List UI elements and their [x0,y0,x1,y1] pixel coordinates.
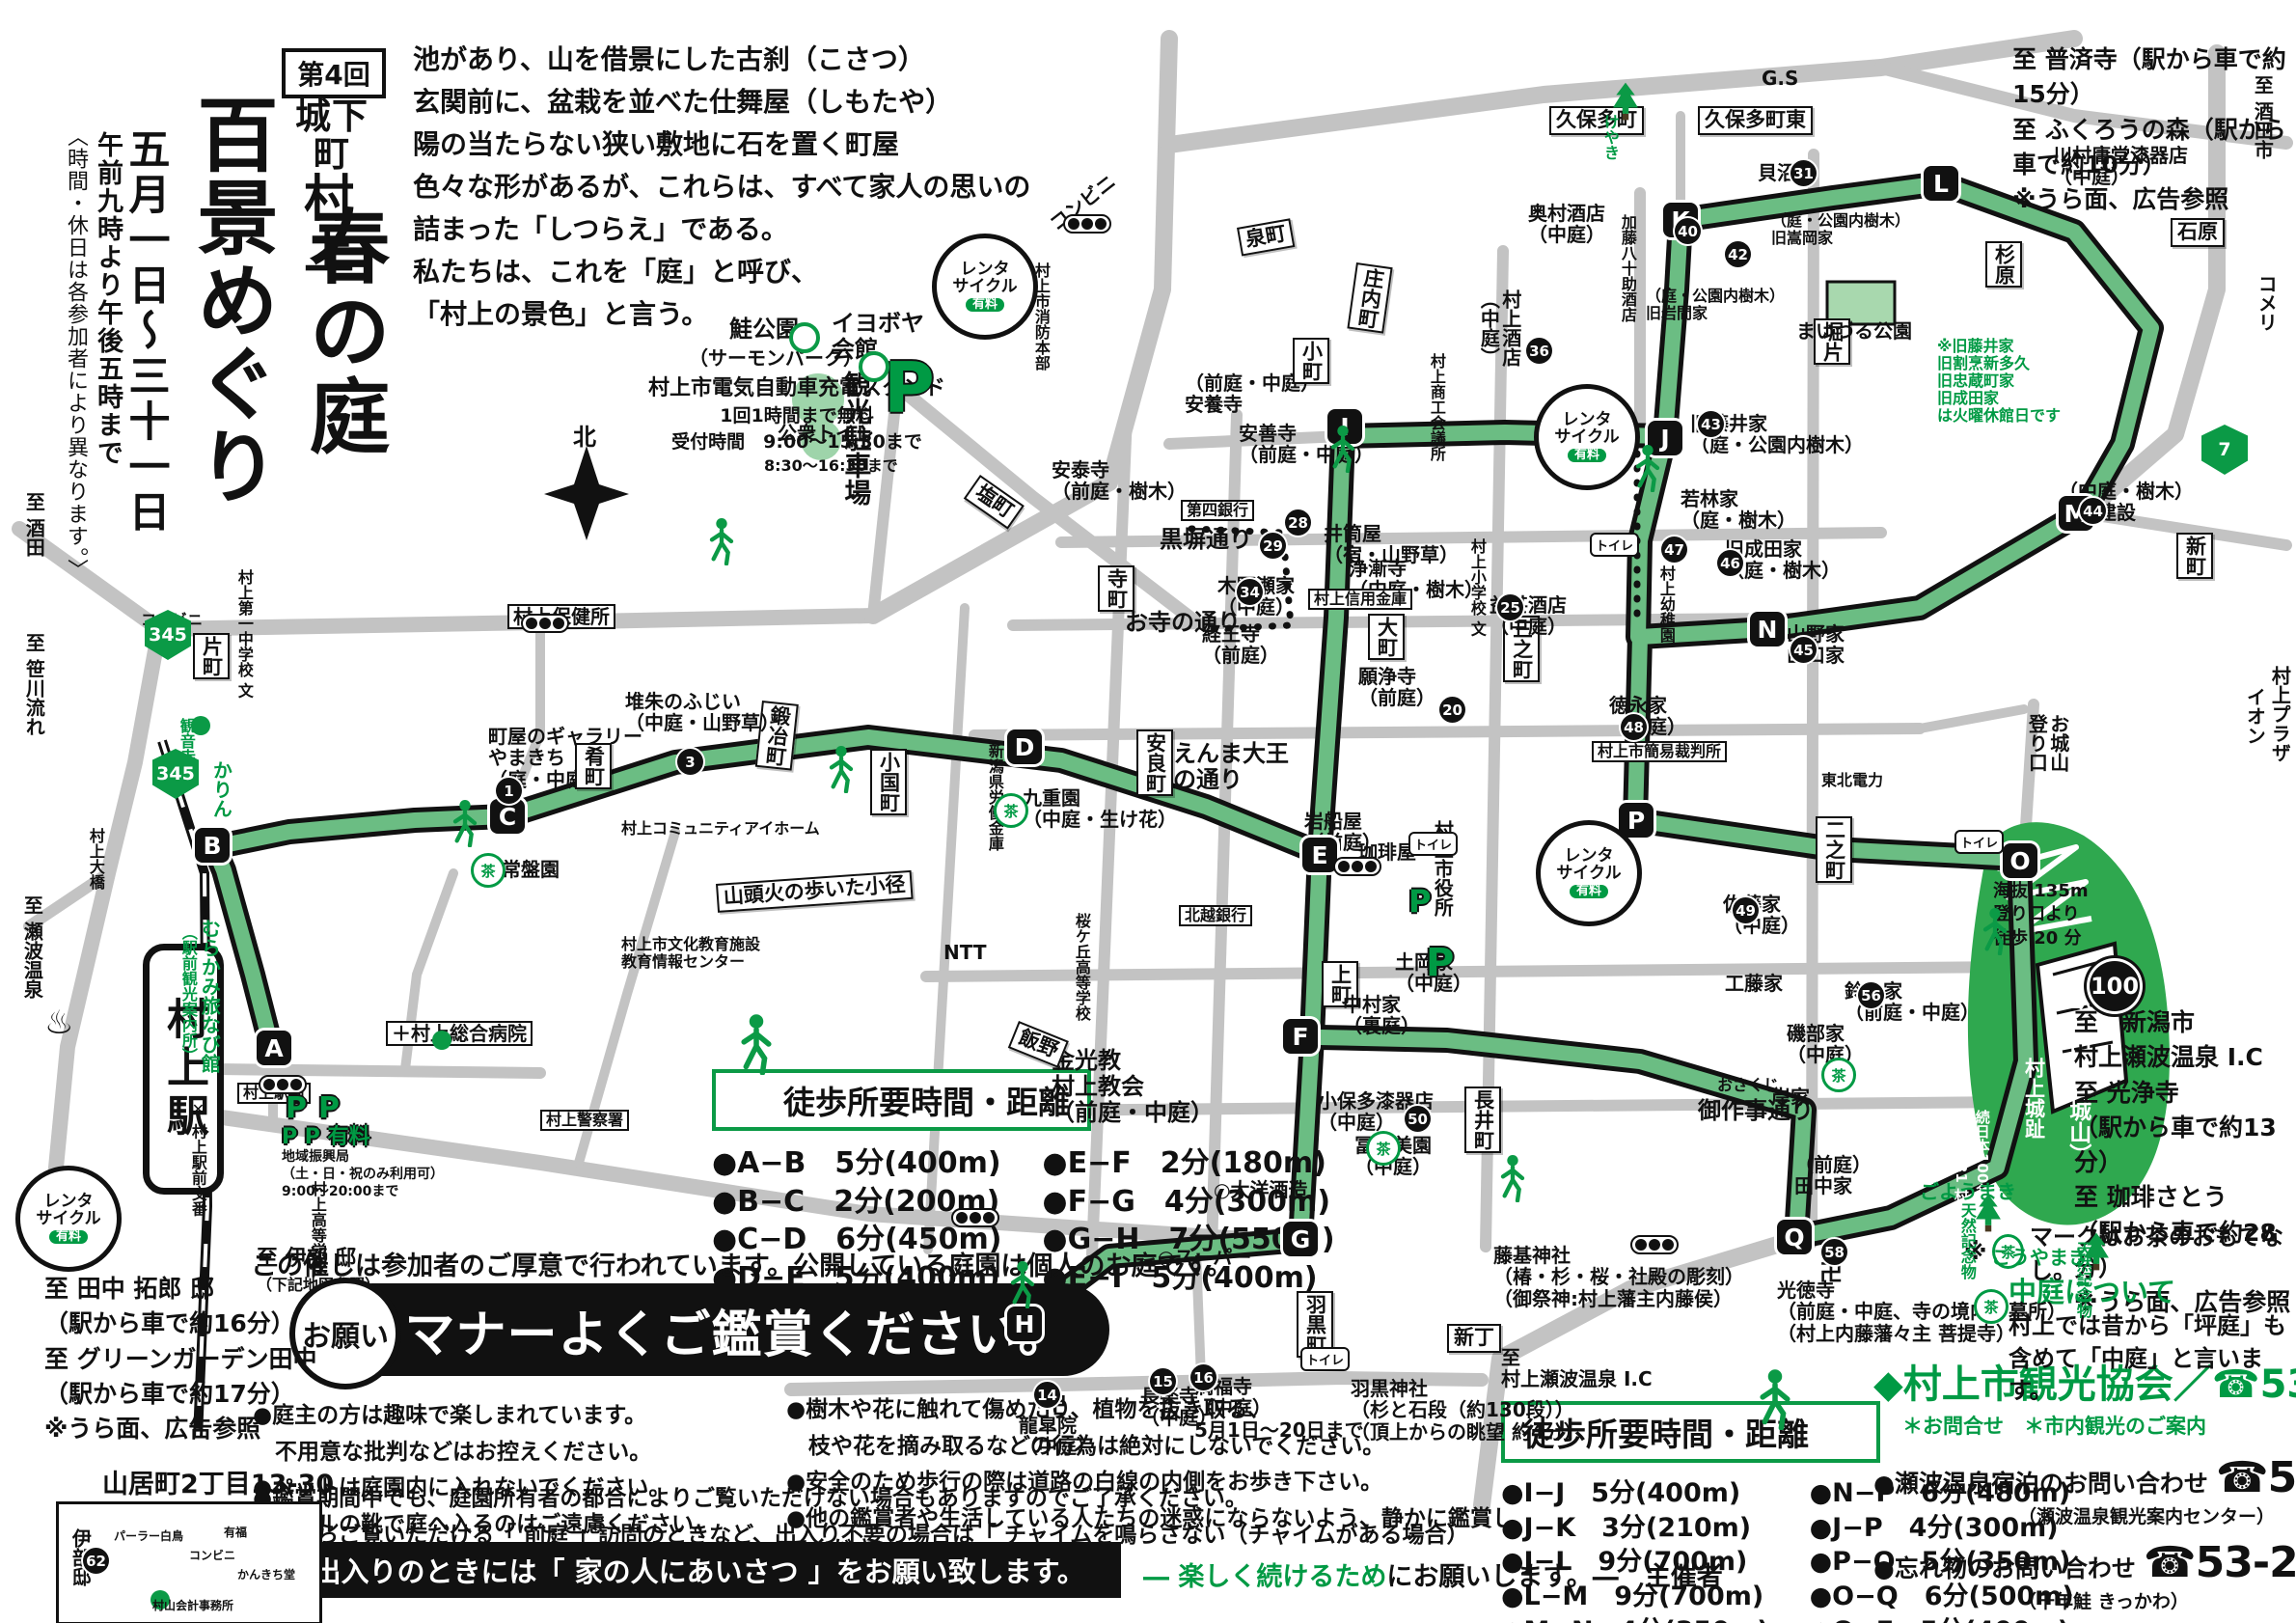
map-label: 長井町 [1464,1087,1501,1153]
manner-headline-bar: マナーよくご鑑賞ください。 [326,1283,1109,1376]
place-dot-icon [432,1031,451,1050]
traffic-signal-icon [1630,1235,1679,1254]
map-label: ＋村上総合病院 [386,1021,533,1046]
contact-note: （瀬波温泉観光案内センター） [2018,1502,2288,1528]
garden-spot-44: 44 [2080,498,2106,524]
map-label: 村上酒店（中庭） [1478,289,1521,367]
map-label: 北越銀行 [1179,905,1252,926]
map-label: 北 [573,425,596,451]
walker-icon [1003,1260,1042,1312]
public-toilet-hours: 8:30～16:30まで [764,457,898,475]
map-label: 至 瀬波温泉 [21,895,42,999]
koban-label: ✕ 村上駅前交番 [189,1100,206,1217]
map-label: （庭・公園内樹木）旧岩間家 [1646,288,1785,322]
compass-star [544,446,629,540]
route-marker-C: C [490,799,525,834]
map-label: 願浄寺（前庭） [1358,666,1435,709]
tea-service-icon: 茶 [994,793,1028,828]
walker-icon [702,517,741,569]
map-label: 村上第一中学校 文 [235,569,253,699]
inset-label: コンビニ [189,1550,235,1562]
walker-icon [1750,1368,1800,1430]
toilet-icon: トイレ [1408,832,1458,856]
map-label: 至村上瀬波温泉 I.C [1501,1347,1653,1390]
map-label: 満福寺（中庭）5月1日～20日まで [1194,1376,1364,1441]
garden-spot-14: 14 [1034,1382,1060,1408]
garden-spot-29: 29 [1260,533,1286,559]
shinko-office-block: P P 有料 地域振興局 （土・日・祝のみ利用可） 9:00～20:00まで [282,1127,444,1201]
map-label: 若林家（庭・樹木） [1681,488,1796,532]
garden-spot-1: 1 [496,778,522,804]
route-marker-A: A [257,1031,291,1065]
walker-icon [822,745,861,797]
map-label: 村上警察署 [540,1110,629,1131]
map-label: 工藤家 [1725,973,1783,994]
onsen-icon: ♨ [44,1004,73,1042]
manner-headline: マナーよくご鑑賞ください。 [366,1294,1069,1366]
garden-spot-25: 25 [1497,594,1523,620]
map-label: 村上商工会議所 [1428,353,1445,461]
walk-row: ●I−J 5分(400m) [1501,1476,1769,1511]
route-marker-O: O [2003,843,2037,878]
navi-house-sublabel: （駅前観光案内所） [179,924,197,1063]
map-label: 村上小学校 文 [1468,538,1486,637]
contact-phone: ☎53-2213 [2144,1538,2296,1587]
walker-icon [1976,907,2014,959]
garden-spot-56: 56 [1858,982,1884,1008]
garden-spot-58: 58 [1821,1239,1847,1265]
intro-line: 池があり、山を借景にした古刹（こさつ） [413,39,1050,81]
route-marker-F: F [1283,1019,1318,1054]
rental-cycle-badge: レンタサイクル有料 [15,1166,122,1272]
garden-spot-15: 15 [1150,1368,1176,1394]
shinko-days: （土・日・祝のみ利用可） [282,1166,444,1183]
garden-spot-62: 62 [83,1548,109,1574]
traffic-signal-icon [1063,214,1111,234]
map-label: お寺の通り [1125,610,1241,636]
map-label: 奥村酒店（中庭） [1528,203,1605,246]
tree-icon [1609,81,1642,125]
walk-row: ●A−B 5分(400m) [712,1144,1001,1183]
garden-spot-16: 16 [1190,1364,1216,1390]
notice-intro: この催しは参加者のご厚意で行われています。公開している庭園は個人のお庭です。 [251,1245,1233,1282]
intro-line: 陽の当たらない狭い敷地に石を置く町屋 [413,124,1050,166]
map-label: ○スーパー [1158,1247,1251,1268]
note-line: 至 グリーンガーデン田中 [44,1342,316,1377]
map-label: 寺町 [1098,565,1134,612]
castle-ruins-label: 村上城趾 [2022,1058,2045,1139]
tea-service-icon: 茶 [1366,1131,1401,1166]
map-label: おさくじ [1717,1077,1779,1094]
notice-bullet: ●鑑賞期間中でも、庭園所有者の都合によりご覧いただけない場合もありますのでご了承… [253,1484,1488,1515]
walk-table-2-left: ●I−J 5分(400m)●J−K 3分(210m)●J−L 9分(700m)●… [1501,1476,1769,1623]
contact-row: ●瀬波温泉宿泊のお問い合わせ☎52-2656（瀬波温泉観光案内センター） [1873,1453,2288,1528]
note-line: （駅から車で約16分） [44,1307,316,1341]
garden-spot-31: 31 [1790,160,1817,186]
map-label: 川村庸堂漆器店（中庭） [2053,145,2188,188]
note-line: 至 光浄寺 [2074,1076,2296,1111]
map-label: イオン [2244,687,2265,745]
garden-spot-43: 43 [1698,411,1724,437]
garden-spot-40: 40 [1675,218,1701,244]
walker-icon [1493,1154,1532,1206]
parking-icon: P [286,1094,307,1123]
map-label: 岸家 [1771,1087,1810,1108]
walker-icon [446,799,484,851]
map-label: （前庭）田中家 [1794,1154,1872,1197]
map-label: 第四銀行 [1181,500,1254,521]
contact-label: ●忘れ物のお問い合わせ [1873,1550,2136,1584]
route-marker-E: E [1302,838,1337,872]
map-label: 至 酒田市 [2252,75,2273,159]
place-ring-icon [859,351,889,382]
map-label: 新丁 [1447,1324,1501,1353]
garden-spot-50: 50 [1405,1106,1431,1132]
map-label: 常盤園 [502,859,560,880]
route-marker-D: D [1007,729,1042,764]
map-label: G.S [1762,68,1798,89]
inset-label: 有福 [224,1527,247,1539]
tourism-association-sub: ＊お問合せ ＊市内観光のご案内 [1902,1411,2288,1440]
map-label: まいづる公園 [1796,320,1912,342]
route-marker-P: P [1619,803,1654,838]
map-label: ※旧藤井家旧割烹新多久旧忠蔵町家旧成田家は火曜休館日です [1937,338,2061,425]
tea-service-icon: 茶 [1821,1058,1856,1092]
map-label: 大町 [1368,614,1405,660]
toilet-icon: トイレ [1954,830,2004,854]
map-label: 石原 [2171,218,2225,247]
tree-icon [1972,1193,2005,1237]
parking-icon: P [884,353,935,423]
tea-service-icon: 茶 [1974,1289,2009,1324]
rental-cycle-badge: レンタサイクル有料 [1536,820,1642,926]
map-label: 東北電力 [1821,772,1883,789]
garden-spot-48: 48 [1621,714,1647,740]
parking-icon: P [318,1094,340,1123]
toilet-icon: トイレ [1300,1347,1350,1371]
garden-spot-100: 100 [2090,961,2140,1011]
traffic-signal-icon [951,1208,999,1227]
nakaniwa-body2: 含めて「中庭」と言います。 [2009,1343,2296,1408]
route-marker-Q: Q [1777,1220,1812,1254]
map-label: 村上市文化教育施設教育情報センター [621,936,760,971]
map-label: 久保多町東 [1698,106,1813,135]
inset-title: 山居町2丁目13-30 [102,1463,334,1500]
map-label: NTT [943,942,986,963]
shinko-name: 地域振興局 [282,1148,444,1166]
route-marker-N: N [1750,612,1785,646]
map-label: 桜ケ丘高等学校 [1073,913,1090,1021]
intro-line: 玄関前に、盆栽を並べた仕舞屋（しもたや） [413,81,1050,124]
map-label: 至 笹川流れ [23,633,44,736]
garden-spot-42: 42 [1725,241,1751,267]
map-label: 安泰寺（前庭・樹木） [1052,459,1187,503]
garden-spot-46: 46 [1717,550,1743,576]
walk-table-1-title: 徒歩所要時間・距離 [712,1069,1091,1131]
map-label: 村上幼稚園 [1657,565,1675,643]
map-label: 至 酒田 [23,492,44,557]
map-label: 片町 [193,633,230,679]
map-label: ○大洋酒造 [1214,1179,1307,1200]
map-label: 堆朱のふじい（中庭・山野草） [625,691,779,734]
bottom-left-notes: 至 田中 拓郎 邸（駅から車で約16分）至 グリーンガーデン田中（駅から車で約1… [44,1272,316,1446]
map-label: 村上信用金庫 [1308,589,1412,610]
rental-cycle-badge: レンタサイクル有料 [1534,384,1640,490]
event-season-title: 春の庭 [286,205,402,459]
contact-label: ●瀬波温泉宿泊のお問い合わせ [1873,1465,2208,1499]
map-label: 加藤八十助酒店 [1619,214,1636,322]
intro-line: 色々な形があるが、これらは、すべて家人の思いの [413,166,1050,208]
place-ring-icon [789,322,820,353]
map-label: 村上大橋 [87,828,104,890]
map-label: かりん [210,760,232,818]
traffic-signal-icon [521,614,569,633]
map-label: 龍皐院（中庭） [1019,1415,1096,1458]
event-hours: 午前九時より午後五時まで [89,131,126,467]
map-label: 村上市簡易裁判所 [1592,741,1727,762]
map-label: 小国町 [870,749,907,815]
map-label: 村上プラザ [2269,666,2290,762]
garden-spot-3: 3 [677,749,703,775]
note-line: （駅から車で約13分） [2074,1111,2296,1181]
footer-note-green: ― 楽しく続けるため [1143,1562,1386,1592]
garden-spot-20: 20 [1439,697,1465,723]
garden-spot-45: 45 [1790,637,1817,663]
map-label: 藤基神社（椿・杉・桜・社殿の彫刻）（御祭神:村上藩主内藤侯） [1493,1245,1744,1309]
garden-spot-34: 34 [1237,579,1263,605]
inset-label: かんきち堂 [237,1569,295,1582]
garden-spot-47: 47 [1661,536,1687,563]
map-label: お城山登り口 [2026,714,2069,772]
garden-spot-28: 28 [1285,509,1311,536]
inset-label: 村山会計事務所 [152,1600,233,1612]
map-label: 二之町 [1816,816,1852,883]
footer-note-black: にお願いします。― 主催者 [1386,1562,1722,1592]
map-label: 中村家（裏庭） [1343,994,1420,1037]
traffic-signal-icon [259,1075,307,1094]
place-dot-icon [191,716,210,735]
map-label: 新町 [2176,533,2213,579]
note-line: 至 珈琲さとう [2074,1180,2296,1215]
event-round-badge: 第4回 [282,48,386,98]
note-line: ※うら面、広告参照 [44,1412,316,1446]
walk-row: ●M−N 4分(350m) [1501,1614,1769,1623]
map-label: （庭・公園内樹木）旧嵩岡家 [1771,212,1910,247]
map-label: 安良町 [1136,729,1173,796]
map-label: 村上コミュニティアイホーム [621,820,820,838]
map-label: 黒塀通り [1160,527,1252,553]
note-line: （駅から車で約17分） [44,1377,316,1412]
walker-icon [1324,425,1362,477]
tree-icon [2080,1231,2113,1276]
mountain-alt1: 海抜 135m [1993,880,2089,903]
sightseeing-parking-label: 観光駐車場 [841,371,871,506]
parking-icon: P [1426,944,1454,982]
map-label: コメリ [2255,274,2277,332]
shinko-parking: P P 有料 [282,1127,444,1148]
walk-row: ●E−F 2分(180m) [1042,1144,1334,1183]
contact-row: ●忘れ物のお問い合わせ☎53-2213（千年鮭 きっかわ） [1873,1538,2288,1613]
footer-note: ― 楽しく続けるためにお願いします。― 主催者 [1143,1555,1723,1593]
greeting-bar: ●出入りのときには「 家の人にあいさつ 」をお願い致します。 [253,1542,1121,1598]
rental-cycle-badge: レンタサイクル有料 [932,234,1038,340]
traffic-signal-icon [1333,857,1381,876]
garden-spot-36: 36 [1526,338,1552,364]
map-label: 金光教村上教会（前庭・中庭） [1052,1048,1214,1126]
parking-icon: P [1408,886,1431,917]
map-label: 小町 [1293,338,1329,384]
event-hours-note: 〈時間・休日は各参加者により異なります。〉 [60,125,91,859]
route-marker-G: G [1283,1222,1318,1256]
note-line: 至 新潟市 [2074,1005,2296,1040]
inset-label: パーラー白鳥 [114,1530,183,1543]
event-main-title: 百景めぐり [174,93,290,508]
garden-spot-49: 49 [1733,897,1759,923]
map-label: 杉原 [1985,241,2022,288]
map-label: えんま大王の通り [1173,741,1289,793]
contact-phone: ☎52-2656 [2216,1453,2296,1502]
map-label: 磯部家（中庭） [1787,1023,1864,1066]
contact-note: （千年鮭 きっかわ） [2018,1587,2288,1613]
map-label: 肴町 [575,743,612,789]
map-label: こうやまき [1991,1247,2088,1268]
event-region-line1: 城下町 [278,98,386,174]
toilet-icon: トイレ [1590,533,1639,557]
note-line: 村上瀬波温泉 I.C [2074,1040,2296,1075]
notice-bullet: ●庭主の方は趣味で楽しまれています。 [253,1401,779,1432]
route-marker-B: B [195,828,230,863]
route-marker-L: L [1924,166,1958,201]
tea-service-icon: 茶 [471,853,506,888]
shinko-hours: 9:00～20:00まで [282,1183,444,1200]
map-label: 光徳寺（前庭・中庭、寺の境内、墓所）（村上内藤藩々主 菩提寺） [1777,1279,2066,1344]
contact-rows: ●瀬波温泉宿泊のお問い合わせ☎52-2656（瀬波温泉観光案内センター）●忘れ物… [1873,1453,2288,1623]
note-line: 至 田中 拓郎 邸 [44,1272,316,1307]
walk-row: ●J−K 3分(210m) [1501,1511,1769,1546]
murakami-spring-garden-map: 第4回 城下町 村上 春の庭 百景めぐり 五月一日～三十一日 午前九時より午後五… [0,0,2296,1623]
walker-icon [731,1013,781,1075]
navi-house-label: むらかみ旅なび館 [199,919,220,1073]
